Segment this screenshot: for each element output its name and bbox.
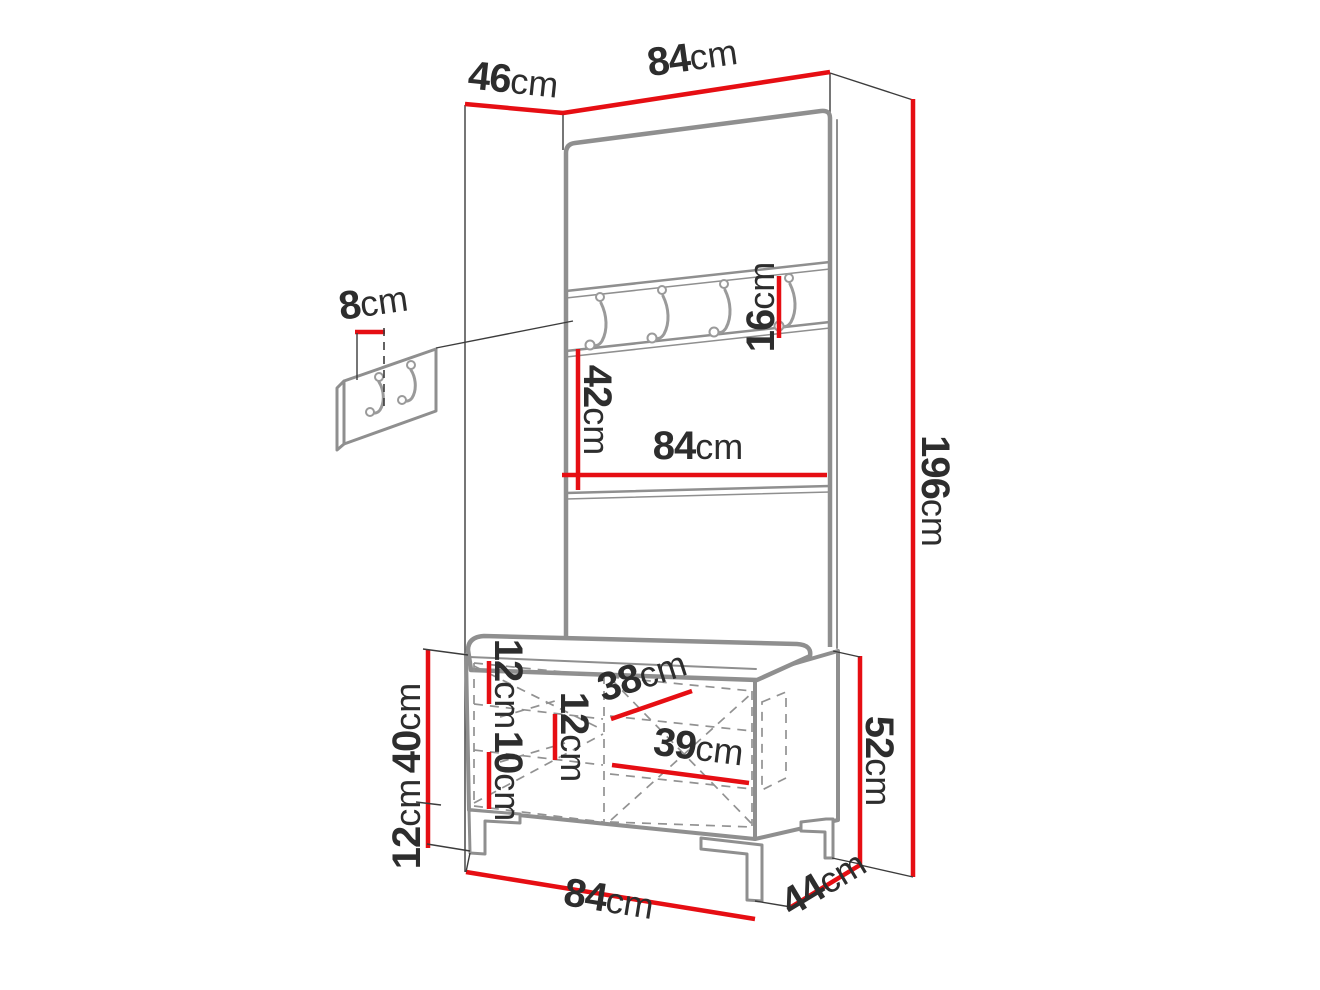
dim-label-shelf-gap-bottom: 10cm bbox=[486, 731, 530, 822]
dim-label-hook-panel: 8cm bbox=[336, 276, 411, 329]
dim-label-shelf-gap-top: 12cm bbox=[486, 639, 530, 730]
dim-label-total-height: 196cm bbox=[913, 435, 957, 547]
dim-label-bench-body-height: 40cm bbox=[385, 683, 429, 774]
dim-label-rail-height: 16cm bbox=[739, 262, 783, 353]
leader-line bbox=[436, 321, 573, 348]
dim-label-shelf-gap-mid: 12cm bbox=[552, 692, 596, 783]
diagram-canvas: 46cm 84cm 196cm 16cm 42cm 84cm 8cm 40cm … bbox=[0, 0, 1320, 990]
dim-label-panel-width: 84cm bbox=[653, 424, 744, 468]
dim-label-bench-width: 84cm bbox=[561, 870, 657, 928]
small-hook-panel bbox=[337, 349, 436, 450]
furniture-dimension-diagram: 46cm 84cm 196cm 16cm 42cm 84cm 8cm 40cm … bbox=[0, 0, 1320, 990]
hook-panel-face bbox=[344, 349, 436, 444]
dim-label-bench-height: 52cm bbox=[857, 716, 901, 807]
bench-leg bbox=[701, 838, 762, 901]
wall-top-line bbox=[830, 73, 913, 100]
dim-label-leg-height: 12cm bbox=[385, 779, 429, 870]
dim-line-depth-top bbox=[465, 104, 563, 113]
dim-label-mirror-height: 42cm bbox=[575, 365, 619, 456]
dim-label-width-top: 84cm bbox=[644, 29, 740, 85]
bench-leg bbox=[801, 819, 833, 858]
bench-side-face bbox=[755, 651, 838, 839]
dim-label-depth-top: 46cm bbox=[466, 53, 561, 106]
dim-line-width-top bbox=[563, 72, 830, 113]
